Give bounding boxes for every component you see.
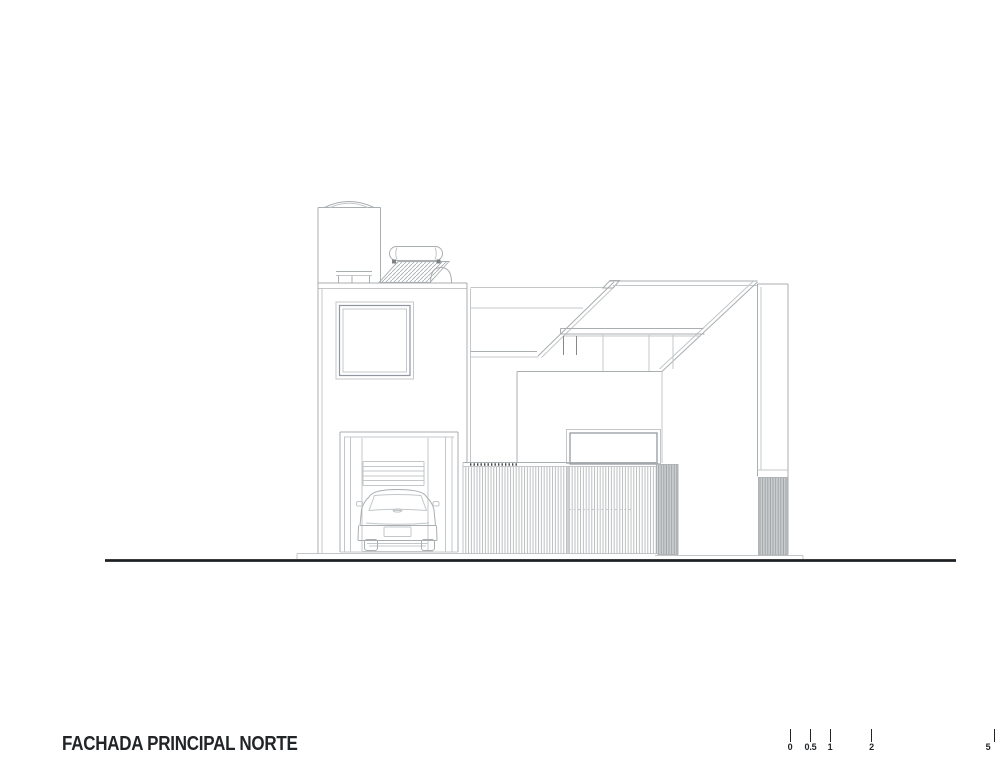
drawing-title: FACHADA PRINCIPAL NORTE [62, 733, 298, 756]
patio-window [567, 430, 661, 465]
left-volume [318, 283, 471, 554]
square-window [336, 302, 414, 379]
solar-water-heater [379, 247, 452, 283]
sloped-roof [471, 281, 758, 372]
water-tank [318, 202, 381, 284]
grey-slat-panel-left [658, 465, 678, 555]
garage-door-louvers [363, 462, 424, 486]
clerestory-mullions [563, 335, 701, 371]
elevation-drawing [0, 0, 1000, 767]
slatted-fence [463, 463, 657, 554]
lower-volume [517, 372, 662, 464]
grey-slat-panel-right [759, 478, 788, 556]
garage-opening [340, 432, 458, 552]
roof-equipment-table [336, 272, 372, 283]
ground-line [105, 554, 956, 561]
architectural-sheet: FACHADA PRINCIPAL NORTE 0 0.5 1 2 5 [0, 0, 1000, 767]
car-rear-view [357, 490, 440, 552]
